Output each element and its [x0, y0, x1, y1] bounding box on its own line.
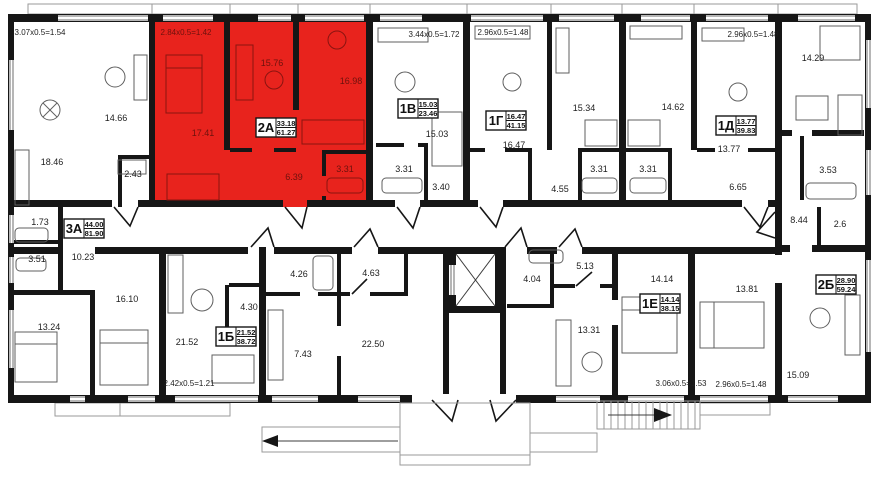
exterior-stairs [597, 401, 700, 429]
unit-tag-2a: 2А 33.18 61.27 [256, 118, 296, 137]
apartment-studio-region[interactable] [266, 254, 443, 395]
apartment-1e-region[interactable] [506, 254, 688, 395]
unit-living-2a: 33.18 [277, 119, 296, 128]
elevator-shaft [449, 247, 502, 313]
room-area-a2-hall: 6.39 [285, 172, 303, 182]
room-area-a2-room1: 17.41 [192, 128, 215, 138]
apartment-3a-region[interactable] [8, 14, 159, 395]
unit-total-2a: 61.27 [277, 128, 296, 137]
unit-overlays [8, 14, 865, 395]
unit-id-2a: 2А [258, 120, 275, 135]
floor-plan: 18.46 14.66 2.43 1.73 3.51 10.23 16.10 1… [0, 0, 879, 477]
room-area-a2-room2: 15.76 [261, 58, 284, 68]
floor-plan-page: 18.46 14.66 2.43 1.73 3.51 10.23 16.10 1… [0, 0, 879, 477]
apartment-1b-region[interactable] [166, 254, 259, 395]
entrance-arrow-left-icon [262, 435, 278, 447]
apartment-1g-region[interactable] [470, 14, 619, 207]
room-area-a2-kitchen: 16.98 [340, 76, 363, 86]
stairs-arrow-right-icon [654, 408, 672, 422]
entrance-area [262, 403, 597, 465]
apartment-2b-region[interactable] [782, 14, 865, 395]
balcony-dim-2: 2.84x0.5=1.42 [161, 28, 212, 37]
apartment-1v-region[interactable] [373, 14, 463, 207]
apartment-1d-region[interactable] [626, 14, 775, 207]
room-area-a2-bath: 3.31 [336, 164, 354, 174]
apartment-2b-room-region[interactable] [695, 254, 775, 395]
